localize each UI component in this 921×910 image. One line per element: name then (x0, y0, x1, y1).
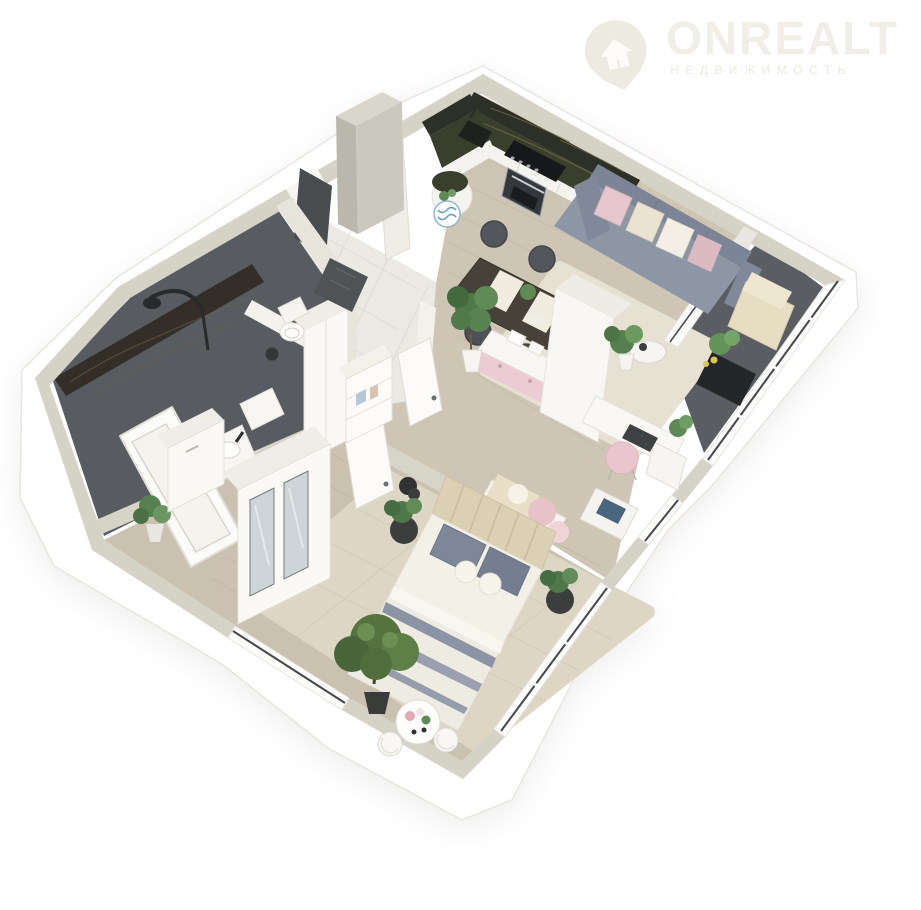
kitchen-pillar-left (336, 116, 358, 234)
watermark: ONREALT НЕДВИЖИМОСТЬ (580, 14, 899, 102)
coffee-tray (630, 341, 666, 363)
desk-pouf-pink (606, 442, 638, 474)
bed-pillow-white-1 (455, 561, 477, 583)
desk-plant-2 (679, 415, 693, 429)
dining-chair-back-1 (481, 221, 507, 247)
bay-table-flowers-white (416, 708, 424, 716)
bedroom-tree-highlight-2 (382, 632, 398, 648)
nightstand-left-plant-3 (384, 500, 400, 516)
floorplan-render: ONREALT НЕДВИЖИМОСТЬ (0, 0, 921, 910)
hall-door-handle (432, 396, 437, 401)
jar-plant-sprig-2 (448, 189, 456, 197)
dining-centerpiece-plant (520, 284, 536, 300)
wardrobe-mirror-2 (284, 471, 308, 579)
bay-round-table (396, 700, 440, 744)
living-plant-2 (625, 325, 643, 343)
hall-palm-leaf-5 (451, 310, 471, 330)
bedroom-tree-foliage-4 (360, 648, 392, 680)
bed-pillow-white-2 (479, 573, 501, 595)
hall-palm-pot (462, 350, 482, 372)
sideboard-knob-2 (528, 379, 532, 383)
location-pin-house-icon (580, 16, 656, 102)
bedroom-door-handle (384, 482, 389, 487)
balcony-plant-2 (724, 330, 740, 346)
sideboard-knob-1 (498, 364, 502, 368)
hall-palm-leaf-2 (474, 286, 498, 310)
floorplan-canvas (0, 0, 921, 910)
living-plant-pot (618, 354, 634, 370)
wc-bin (266, 348, 279, 361)
watermark-text: ONREALT НЕДВИЖИМОСТЬ (666, 14, 899, 77)
living-plant-3 (604, 326, 620, 342)
dining-plate-2 (529, 316, 543, 325)
bathroom-plant-3 (133, 508, 149, 524)
balcony-flowers-2 (703, 361, 709, 367)
wardrobe-mirror-1 (250, 488, 274, 596)
nightstand-right-plant-2 (562, 568, 578, 584)
bay-table-flowers-pink (405, 711, 415, 721)
hall-palm-leaf-3 (447, 286, 469, 308)
decorative-blue-jar (434, 201, 460, 227)
nightstand-right-plant-3 (540, 570, 556, 586)
balcony-flowers (711, 357, 718, 364)
nightstand-left-plant-2 (406, 498, 422, 514)
watermark-subtitle: НЕДВИЖИМОСТЬ (666, 63, 899, 77)
bay-table-cup-2 (412, 730, 417, 735)
watermark-brand: ONREALT (666, 14, 899, 62)
coffee-tray-vase (639, 343, 647, 351)
bay-table-cup-1 (422, 728, 427, 733)
shower-head (143, 297, 161, 309)
banquette-pillow-white (508, 484, 528, 504)
dining-chair-back-2 (529, 246, 555, 272)
jar-plant-sprig (439, 191, 449, 201)
bay-table-greens (422, 716, 431, 725)
bedroom-tree-highlight-1 (357, 623, 375, 641)
